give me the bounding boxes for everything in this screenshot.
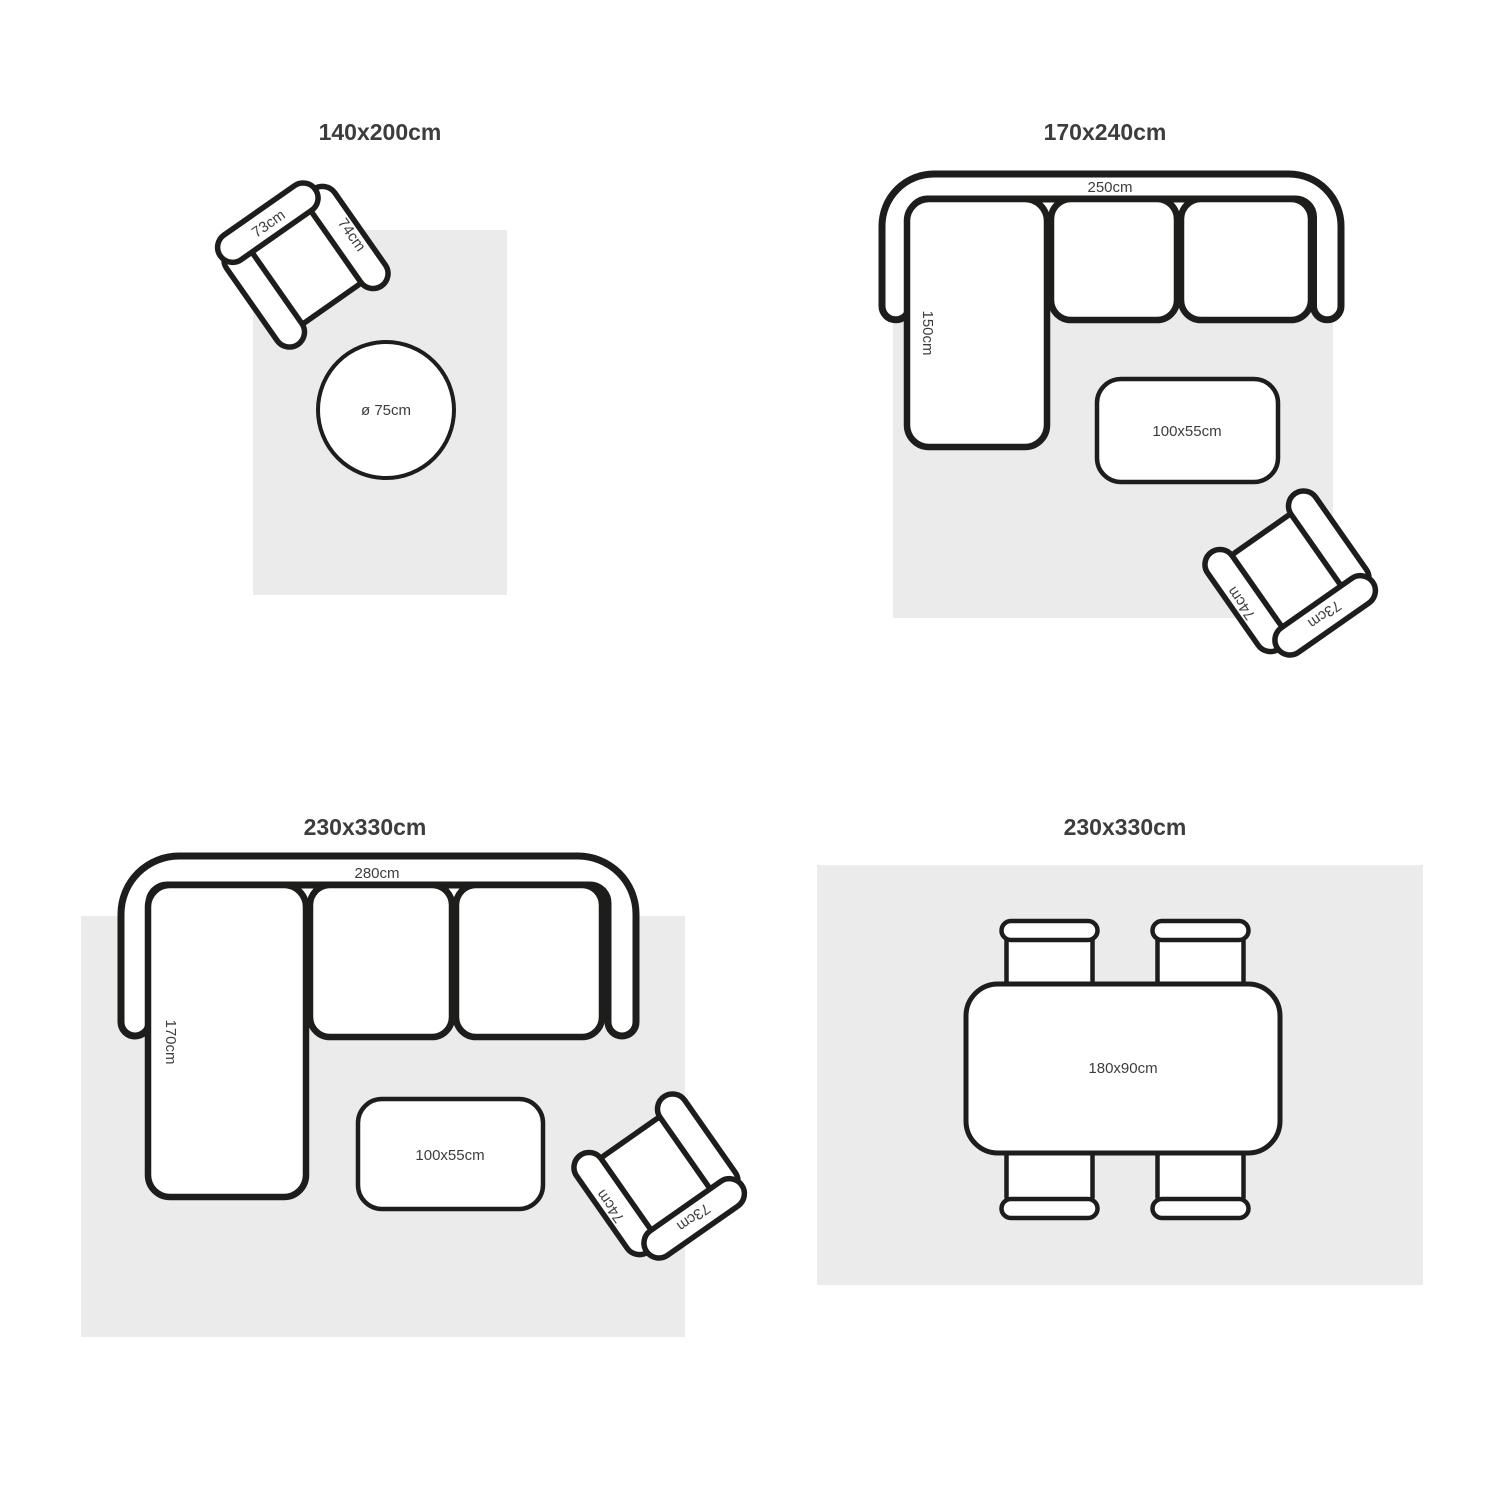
- quadrant-230x330-dining: 230x330cm 180x90cm: [817, 814, 1423, 1285]
- sofa-seat-cushion: [310, 885, 452, 1037]
- quadrant-230x330-living: 230x330cm 280cm 170cm 100x55cm 73cm 74cm: [81, 814, 752, 1337]
- sofa-width-label: 280cm: [354, 865, 399, 882]
- quadrant-title: 230x330cm: [304, 814, 427, 840]
- sofa-seat-cushion: [1181, 199, 1311, 320]
- quadrant-title: 170x240cm: [1044, 119, 1167, 145]
- sofa-chaise-depth-label: 170cm: [162, 1019, 179, 1064]
- sofa-seat-cushion: [456, 885, 602, 1037]
- coffee-table-size-label: 100x55cm: [415, 1147, 484, 1164]
- rug-size-guide: 140x200cm 73cm 74cm ø 75cm 170x240cm 250…: [0, 0, 1500, 1500]
- dining-chair-backrest: [1153, 921, 1249, 940]
- dining-chair-backrest: [1002, 921, 1098, 940]
- sofa-seat-cushion: [1051, 199, 1177, 320]
- dining-chair-backrest: [1002, 1199, 1098, 1218]
- sofa-width-label: 250cm: [1087, 179, 1132, 196]
- round-table-diameter-label: ø 75cm: [361, 402, 411, 419]
- rug-size-guide-diagram: 140x200cm 73cm 74cm ø 75cm 170x240cm 250…: [0, 0, 1500, 1500]
- quadrant-140x200: 140x200cm 73cm 74cm ø 75cm: [210, 119, 507, 595]
- quadrant-170x240: 170x240cm 250cm 150cm 100x55cm 73cm 74cm: [882, 119, 1383, 669]
- sofa-chaise-depth-label: 150cm: [919, 310, 936, 355]
- quadrant-title: 140x200cm: [319, 119, 442, 145]
- dining-chair-backrest: [1153, 1199, 1249, 1218]
- coffee-table-size-label: 100x55cm: [1152, 423, 1221, 440]
- quadrant-title: 230x330cm: [1064, 814, 1187, 840]
- dining-table-size-label: 180x90cm: [1088, 1060, 1157, 1077]
